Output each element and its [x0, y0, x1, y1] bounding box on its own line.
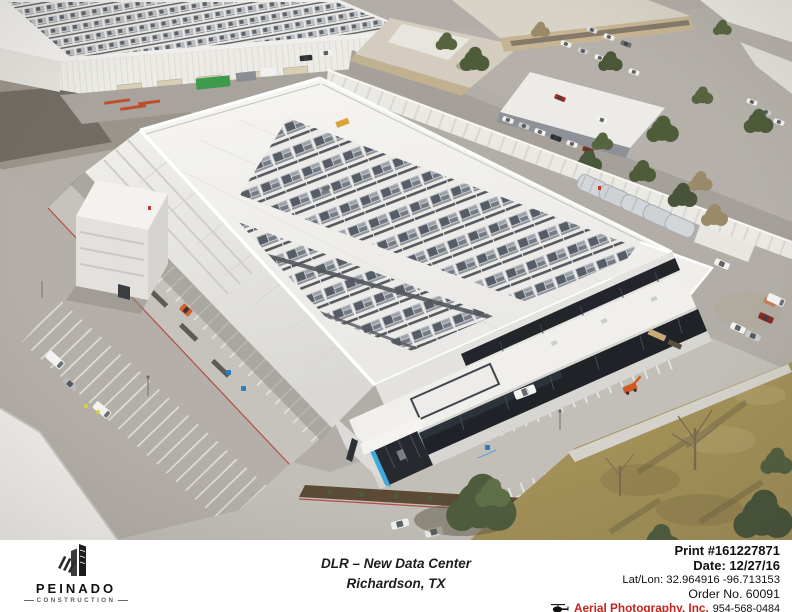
- logo-rule-right: [118, 600, 128, 601]
- helicopter-icon: [550, 603, 570, 612]
- logo-rule-left: [24, 600, 34, 601]
- logo-subtitle: CONSTRUCTION: [24, 597, 128, 604]
- print-number: Print #161227871: [450, 543, 780, 558]
- print-date: Date: 12/27/16: [450, 558, 780, 573]
- logo-name: PEINADO: [24, 581, 128, 596]
- photographer-name: Aerial Photography, Inc.: [574, 602, 709, 612]
- photo-print-page: PEINADO CONSTRUCTION DLR – New Data Cent…: [0, 0, 792, 612]
- peinado-logo: PEINADO CONSTRUCTION: [24, 542, 128, 604]
- photo-credit: Aerial Photography, Inc. 954-568-0484: [450, 602, 780, 612]
- photographer-phone: 954-568-0484: [713, 603, 780, 612]
- caption-bar: PEINADO CONSTRUCTION DLR – New Data Cent…: [0, 540, 792, 612]
- aerial-photo: [0, 0, 792, 540]
- skyscrapers-icon: [53, 542, 99, 582]
- order-number: Order No. 60091: [450, 587, 780, 602]
- photo-info: Print #161227871 Date: 12/27/16 Lat/Lon:…: [450, 543, 780, 612]
- photo-vignette: [0, 0, 792, 540]
- lat-lon: Lat/Lon: 32.964916 -96.713153: [450, 574, 780, 587]
